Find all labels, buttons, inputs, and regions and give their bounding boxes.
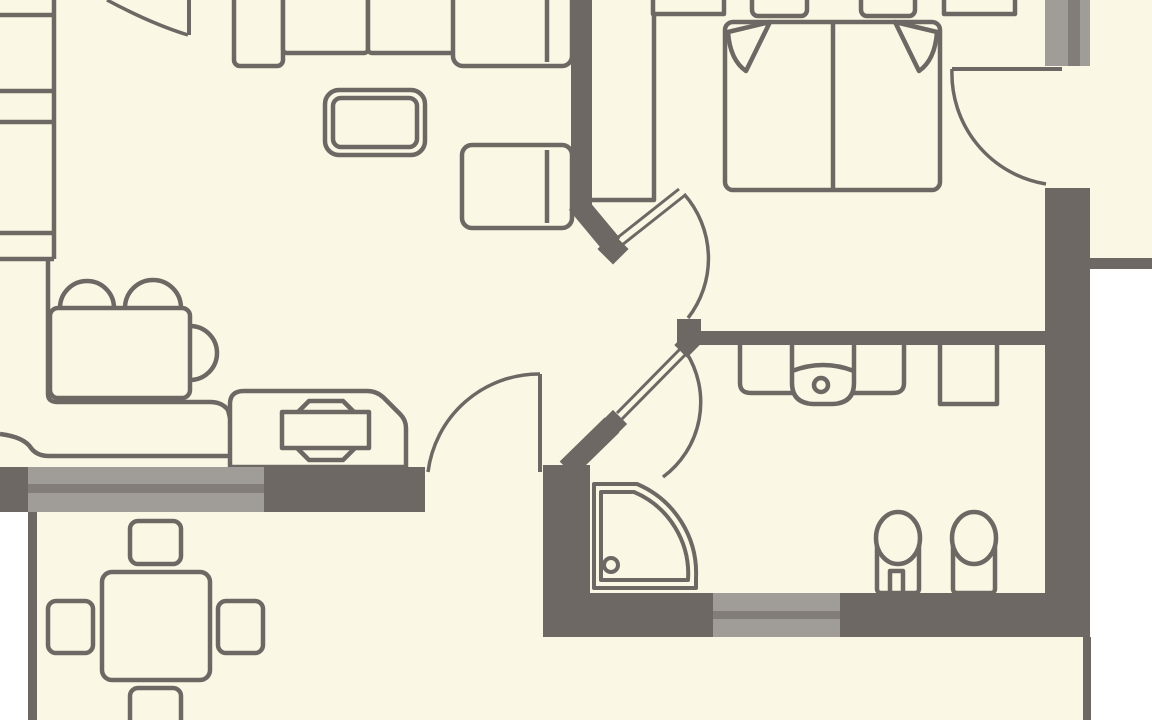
wardrobe [588, 0, 654, 200]
outdoor-chair-right [218, 601, 263, 653]
window-glass [1045, 0, 1090, 66]
console-tray [282, 412, 369, 448]
outdoor-table [102, 572, 210, 680]
desk-top [50, 308, 190, 398]
coffee-table [325, 90, 425, 155]
living-room-window [28, 467, 264, 512]
media-console [230, 391, 406, 467]
sofa-cushion [368, 0, 455, 53]
sink-basin [792, 342, 854, 404]
double-bed [725, 0, 940, 190]
window-frame [28, 484, 264, 493]
window-frame [1068, 0, 1080, 66]
wall-east-stub [1088, 258, 1152, 269]
terrace-rail-left [28, 512, 37, 720]
pillow [861, 0, 915, 16]
outdoor-chair-top [130, 521, 181, 564]
nightstand-left [653, 0, 724, 14]
outdoor-chair-bottom [130, 688, 181, 720]
armchair [462, 145, 572, 228]
sofa-armrest [234, 0, 283, 66]
toilet-flush [890, 571, 903, 593]
floor-plan [0, 0, 1152, 720]
bedroom-window [1045, 0, 1090, 66]
bathroom-cabinet [940, 342, 997, 404]
vanity-with-sink [740, 342, 904, 404]
wall-bedroom-bathroom [694, 331, 1045, 345]
coffee-table-inner [333, 98, 417, 147]
outdoor-chair-left [48, 601, 93, 653]
toilet [876, 512, 920, 593]
armchair-body [462, 145, 572, 228]
pillow [752, 0, 807, 16]
sofa-chaise [453, 0, 572, 66]
wall-east [1045, 188, 1090, 637]
bidet-bowl [952, 512, 996, 564]
nightstand-right [944, 0, 1015, 14]
outside-area-left [0, 512, 28, 720]
sofa-cushion [283, 0, 368, 53]
wall-living-bedroom [571, 0, 592, 209]
terrace-rail-right [1083, 637, 1091, 720]
bathroom-window [713, 593, 840, 637]
outside-area-right [1090, 268, 1152, 720]
window-frame [713, 611, 840, 619]
bidet [952, 512, 996, 593]
toilet-bowl [876, 512, 920, 564]
